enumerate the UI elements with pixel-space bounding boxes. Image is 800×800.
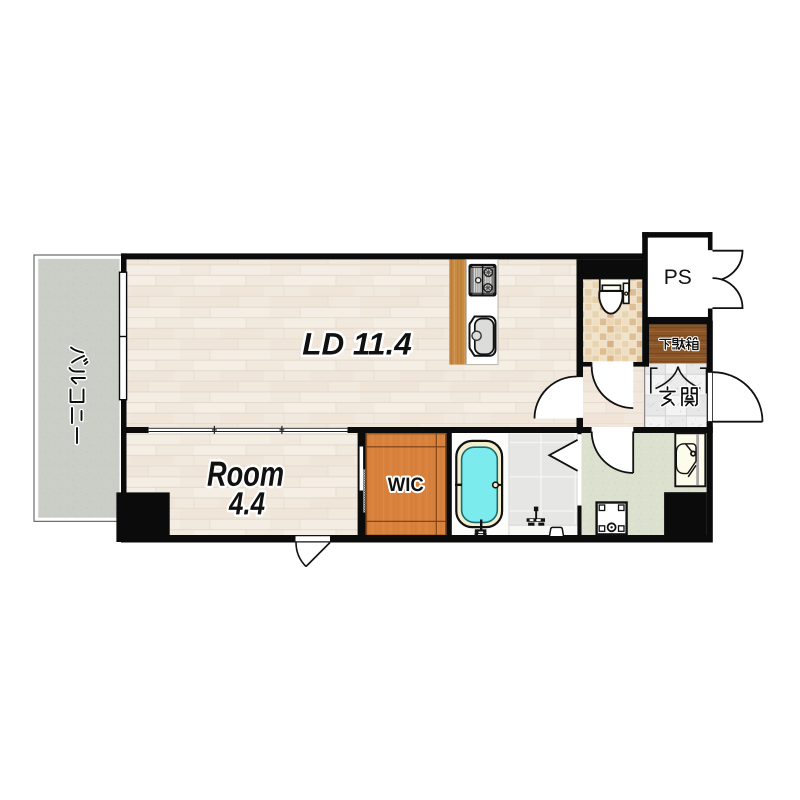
svg-text:PS: PS: [664, 266, 692, 289]
svg-text:4.4: 4.4: [228, 485, 265, 521]
svg-text:WIC: WIC: [388, 474, 424, 496]
svg-text:LD 11.4: LD 11.4: [302, 326, 412, 361]
